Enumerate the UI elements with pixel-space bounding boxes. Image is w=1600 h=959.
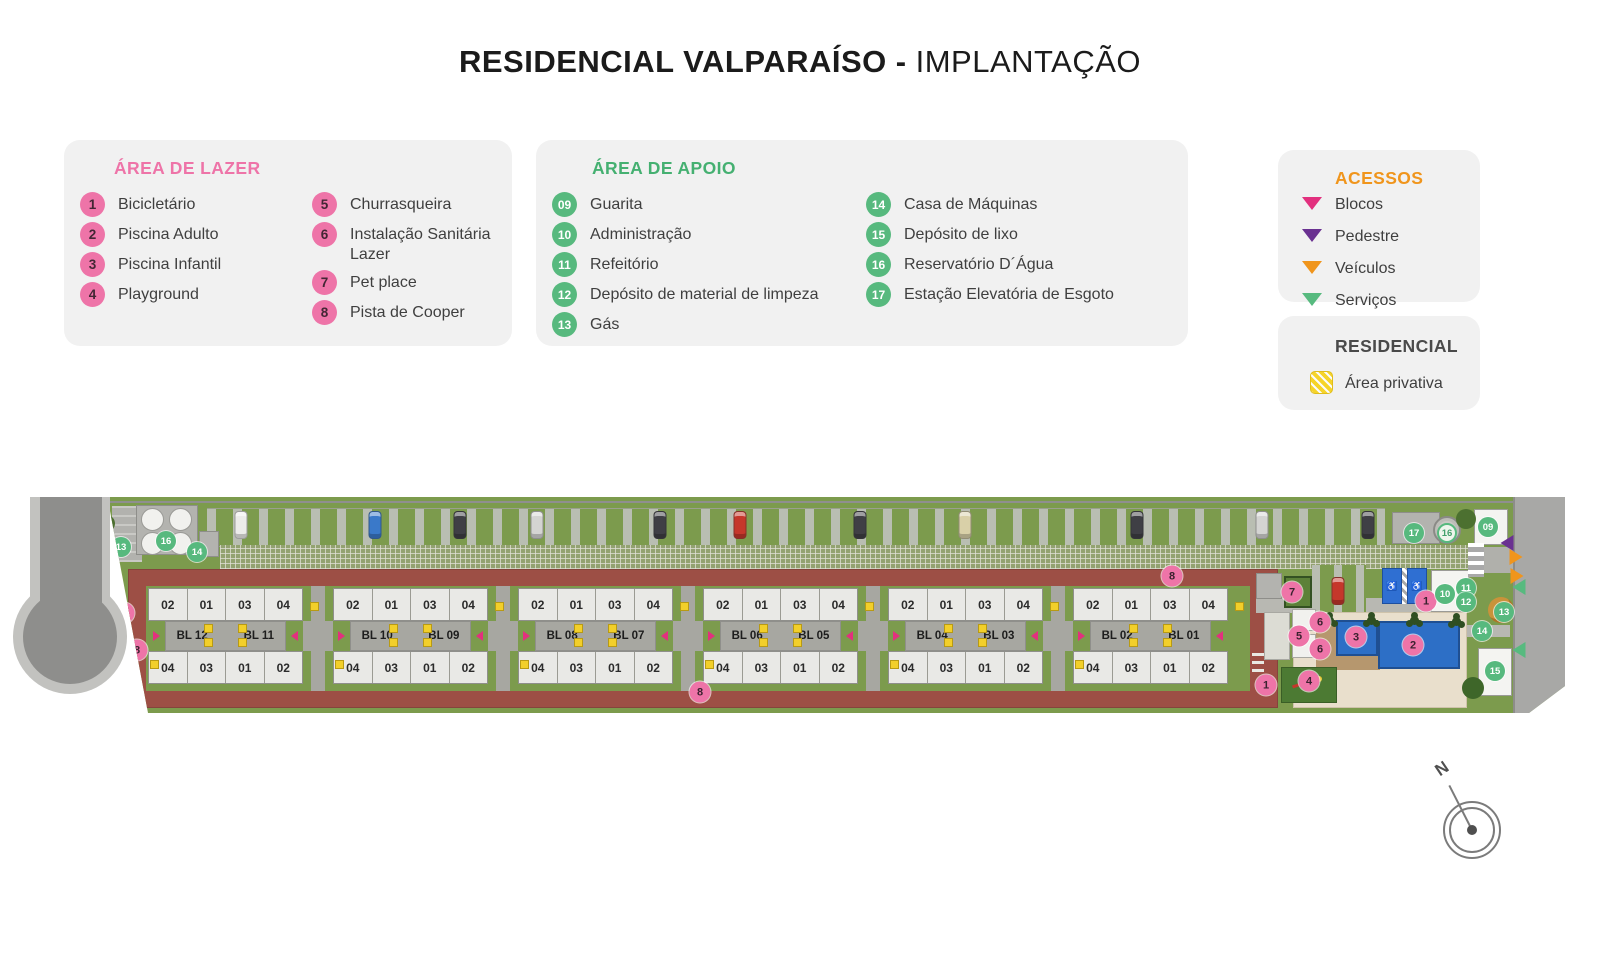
block-access-triangle-icon	[153, 631, 160, 641]
plan-marker-14: 14	[187, 542, 207, 562]
title-separator: -	[896, 44, 907, 79]
block-access-triangle-icon	[846, 631, 853, 641]
unit-cell: 02	[1074, 589, 1113, 620]
right-road	[1513, 497, 1565, 713]
block-label: BL 01	[1168, 630, 1199, 642]
unit-row-top: 02010304	[518, 588, 673, 621]
access-triangle-icon	[1302, 261, 1322, 274]
private-area-patch	[608, 624, 617, 633]
palm-tree	[1410, 616, 1419, 625]
block-label: BL 03	[983, 630, 1014, 642]
private-area-patch	[423, 638, 432, 647]
site-plan: ♿ ♿ 02010304BL 12BL 110403010202010304BL	[0, 497, 1600, 887]
private-area-patch	[944, 638, 953, 647]
private-area-patch	[759, 638, 768, 647]
left-culdesac-surface	[23, 590, 117, 684]
unit-cell: 04	[635, 589, 673, 620]
private-area-patch	[520, 660, 529, 669]
legend-item: 3Piscina Infantil	[80, 252, 305, 277]
block-corridor: BL 10BL 09	[333, 621, 488, 651]
access-triangle-icon	[1302, 197, 1322, 210]
block-access-triangle-icon	[1216, 631, 1223, 641]
plan-marker-5: 5	[1289, 626, 1310, 647]
unit-cell: 03	[188, 652, 227, 683]
title-main: RESIDENCIAL VALPARAÍSO	[459, 44, 887, 79]
legend-item: Veículos	[1302, 256, 1399, 279]
legend-label: Serviços	[1335, 288, 1396, 311]
unit-row-bottom: 04030102	[703, 651, 858, 684]
private-area-patch	[238, 624, 247, 633]
perimeter-fence	[110, 501, 1513, 503]
crosswalk	[1468, 543, 1484, 577]
legend-label: Gás	[590, 312, 619, 335]
parked-car	[654, 511, 667, 539]
path-between-blocks	[488, 621, 518, 651]
plan-marker-17: 17	[1404, 523, 1424, 543]
legend-residencial-title: RESIDENCIAL	[1335, 336, 1480, 357]
barbecue-building	[1264, 612, 1290, 660]
plan-marker-16: 16	[1437, 523, 1457, 543]
plan-marker-15: 15	[1485, 661, 1505, 681]
legend-number-badge: 14	[866, 192, 891, 217]
unit-cell: 04	[265, 589, 303, 620]
parked-car	[1332, 577, 1345, 605]
site-area: ♿ ♿ 02010304BL 12BL 110403010202010304BL	[0, 497, 1600, 713]
plan-marker-13: 13	[111, 537, 131, 557]
legend-item: 16Reservatório D´Água	[866, 252, 1176, 277]
plan-marker-3: 3	[1346, 627, 1367, 648]
unit-row-top: 02010304	[888, 588, 1043, 621]
corridor-paving: BL 12BL 11	[165, 621, 286, 651]
block-pair: 02010304BL 08BL 0704030102	[518, 588, 673, 684]
bike-rack	[1252, 653, 1264, 656]
private-area-patch	[793, 624, 802, 633]
accessible-parking-stall: ♿	[1382, 568, 1402, 604]
unit-cell: 04	[820, 589, 858, 620]
unit-cell: 01	[411, 652, 450, 683]
private-area-patch	[204, 638, 213, 647]
private-area-label: Área privativa	[1345, 371, 1443, 394]
legend-number-badge: 7	[312, 270, 337, 295]
legend-label: Administração	[590, 222, 691, 245]
plan-marker-2: 2	[1403, 635, 1424, 656]
parked-car	[1256, 511, 1269, 539]
unit-cell: 01	[596, 652, 635, 683]
unit-cell: 02	[265, 652, 303, 683]
parked-car	[1362, 511, 1375, 539]
legend-acessos: ACESSOS BlocosPedestreVeículosServiços	[1278, 150, 1480, 302]
parked-car	[235, 511, 248, 539]
unit-cell: 01	[188, 589, 227, 620]
plan-marker-14: 14	[1472, 621, 1492, 641]
path-between-blocks	[303, 621, 333, 651]
corridor-paving: BL 08BL 07	[535, 621, 656, 651]
unit-cell: 02	[149, 589, 188, 620]
legend-number-badge: 6	[312, 222, 337, 247]
private-area-patch	[238, 638, 247, 647]
legend-number-badge: 17	[866, 282, 891, 307]
parking-strip	[207, 508, 1385, 547]
legend-number-badge: 15	[866, 222, 891, 247]
private-area-patch	[495, 602, 504, 611]
unit-row-bottom: 04030102	[518, 651, 673, 684]
unit-cell: 03	[966, 589, 1005, 620]
legend-number-badge: 4	[80, 282, 105, 307]
unit-cell: 02	[820, 652, 858, 683]
parked-car	[1131, 511, 1144, 539]
private-area-patch	[150, 660, 159, 669]
legend-number-badge: 3	[80, 252, 105, 277]
unit-cell: 02	[635, 652, 673, 683]
legend-residencial: RESIDENCIAL Área privativa	[1278, 316, 1480, 410]
private-area-patch	[389, 624, 398, 633]
private-area-patch	[204, 624, 213, 633]
block-access-triangle-icon	[1078, 631, 1085, 641]
legend-label: Veículos	[1335, 256, 1395, 279]
unit-cell: 04	[450, 589, 488, 620]
unit-row-top: 02010304	[148, 588, 303, 621]
unit-cell: 03	[781, 589, 820, 620]
legend-item: 13Gás	[552, 312, 864, 337]
block-corridor: BL 06BL 05	[703, 621, 858, 651]
block-access-triangle-icon	[476, 631, 483, 641]
legend-apoio-col2: 14Casa de Máquinas15Depósito de lixo16Re…	[866, 192, 1176, 312]
unit-cell: 03	[596, 589, 635, 620]
private-area-patch	[574, 638, 583, 647]
legend-apoio-title: ÁREA DE APOIO	[592, 158, 1188, 179]
bike-rack	[1252, 669, 1264, 672]
plan-marker-8: 8	[690, 682, 711, 703]
path-between-blocks	[1043, 621, 1073, 651]
private-area-patch	[1235, 602, 1244, 611]
unit-cell: 01	[373, 589, 412, 620]
legend-label: Casa de Máquinas	[904, 192, 1037, 215]
unit-cell: 01	[781, 652, 820, 683]
unit-cell: 03	[1151, 589, 1190, 620]
unit-cell: 04	[1190, 589, 1228, 620]
unit-cell: 03	[226, 589, 265, 620]
plan-marker-6: 6	[1310, 612, 1331, 633]
unit-row-bottom: 04030102	[888, 651, 1043, 684]
private-area-patch	[1163, 638, 1172, 647]
pet-place-building	[1256, 573, 1282, 599]
block-corridor: BL 12BL 11	[148, 621, 303, 651]
unit-cell: 02	[519, 589, 558, 620]
legend-number-badge: 11	[552, 252, 577, 277]
plan-marker-1: 1	[1256, 675, 1277, 696]
block-label: BL 07	[613, 630, 644, 642]
unit-cell: 03	[928, 652, 967, 683]
private-area-patch	[978, 638, 987, 647]
private-area-patch	[1129, 638, 1138, 647]
block-access-triangle-icon	[893, 631, 900, 641]
unit-cell: 03	[743, 652, 782, 683]
legend-label: Bicicletário	[118, 192, 195, 215]
legend-item: 11Refeitório	[552, 252, 864, 277]
access-triangle-icon	[1302, 229, 1322, 242]
unit-cell: 03	[411, 589, 450, 620]
plan-marker-4: 4	[1299, 671, 1320, 692]
unit-row-top: 02010304	[1073, 588, 1228, 621]
block-pair: 02010304BL 04BL 0304030102	[888, 588, 1043, 684]
unit-cell: 01	[928, 589, 967, 620]
parked-car	[734, 511, 747, 539]
private-area-patch	[890, 660, 899, 669]
page-title: RESIDENCIAL VALPARAÍSO-IMPLANTAÇÃO	[0, 44, 1600, 80]
legend-item: 12Depósito de material de limpeza	[552, 282, 864, 307]
corridor-paving: BL 10BL 09	[350, 621, 471, 651]
unit-row-bottom: 04030102	[1073, 651, 1228, 684]
access-triangle-icon	[1510, 549, 1523, 565]
block-label: BL 11	[244, 630, 274, 642]
legend-item: 10Administração	[552, 222, 864, 247]
block-access-triangle-icon	[523, 631, 530, 641]
legend-label: Pedestre	[1335, 224, 1399, 247]
private-area-patch	[423, 624, 432, 633]
legend-item: 09Guarita	[552, 192, 864, 217]
legend-item: 14Casa de Máquinas	[866, 192, 1176, 217]
block-access-triangle-icon	[661, 631, 668, 641]
plan-marker-1: 1	[1416, 591, 1437, 612]
private-area-patch	[759, 624, 768, 633]
block-access-triangle-icon	[1031, 631, 1038, 641]
unit-cell: 02	[334, 589, 373, 620]
access-triangle-icon	[1513, 579, 1526, 595]
legend-label: Guarita	[590, 192, 642, 215]
block-label: BL 05	[798, 630, 829, 642]
legend-lazer-title: ÁREA DE LAZER	[114, 158, 512, 179]
unit-cell: 01	[1113, 589, 1152, 620]
unit-cell: 03	[373, 652, 412, 683]
legend-item: 8Pista de Cooper	[312, 300, 510, 325]
legend-item: 4Playground	[80, 282, 305, 307]
legend-label: Estação Elevatória de Esgoto	[904, 282, 1114, 305]
plan-marker-09: 09	[1478, 517, 1498, 537]
unit-row-bottom: 04030102	[333, 651, 488, 684]
unit-row-top: 02010304	[333, 588, 488, 621]
compass-north-label: N	[1431, 757, 1452, 780]
private-area-patch	[335, 660, 344, 669]
block-pair: 02010304BL 02BL 0104030102	[1073, 588, 1228, 684]
legend-number-badge: 2	[80, 222, 105, 247]
access-triangle-icon	[1513, 642, 1526, 658]
unit-cell: 04	[1005, 589, 1043, 620]
legend-label: Reservatório D´Água	[904, 252, 1053, 275]
unit-cell: 01	[226, 652, 265, 683]
palm-tree	[1452, 617, 1461, 626]
private-area-patch	[1129, 624, 1138, 633]
legend-label: Piscina Adulto	[118, 222, 219, 245]
unit-cell: 01	[966, 652, 1005, 683]
plan-marker-6: 6	[1310, 639, 1331, 660]
plan-marker-10: 10	[1435, 584, 1455, 604]
legend-number-badge: 09	[552, 192, 577, 217]
parked-car	[369, 511, 382, 539]
legend-item: Serviços	[1302, 288, 1399, 311]
legend-number-badge: 8	[312, 300, 337, 325]
block-pair: 02010304BL 06BL 0504030102	[703, 588, 858, 684]
block-corridor: BL 08BL 07	[518, 621, 673, 651]
plan-marker-13: 13	[1494, 602, 1514, 622]
legend-item: Pedestre	[1302, 224, 1399, 247]
unit-cell: 02	[704, 589, 743, 620]
block-pair: 02010304BL 12BL 1104030102	[148, 588, 303, 684]
legend-item: 17Estação Elevatória de Esgoto	[866, 282, 1176, 307]
unit-cell: 01	[558, 589, 597, 620]
unit-cell: 03	[558, 652, 597, 683]
corridor-paving: BL 02BL 01	[1090, 621, 1211, 651]
path-between-blocks	[858, 621, 888, 651]
path-between-blocks	[673, 621, 703, 651]
legend-number-badge: 12	[552, 282, 577, 307]
private-area-patch	[978, 624, 987, 633]
private-area-patch	[310, 602, 319, 611]
access-triangle-icon	[1302, 293, 1322, 306]
private-area-patch	[574, 624, 583, 633]
private-area-patch	[865, 602, 874, 611]
plan-marker-8: 8	[1162, 566, 1183, 587]
bush	[1462, 677, 1484, 699]
private-area-patch	[944, 624, 953, 633]
unit-cell: 02	[889, 589, 928, 620]
compass-center-dot	[1467, 825, 1477, 835]
legend-label: Pet place	[350, 270, 417, 293]
parked-car	[959, 511, 972, 539]
legend-apoio-col1: 09Guarita10Administração11Refeitório12De…	[552, 192, 864, 342]
legend-item: 7Pet place	[312, 270, 510, 295]
palm-tree	[1367, 616, 1376, 625]
legend-item: 1Bicicletário	[80, 192, 305, 217]
private-area-patch	[1163, 624, 1172, 633]
legend-number-badge: 13	[552, 312, 577, 337]
private-area-patch	[1075, 660, 1084, 669]
parked-car	[854, 511, 867, 539]
plan-marker-7: 7	[1282, 582, 1303, 603]
bike-rack	[1252, 661, 1264, 664]
unit-cell: 02	[450, 652, 488, 683]
block-label: BL 09	[428, 630, 459, 642]
compass: N	[1414, 757, 1544, 872]
legend-acessos-title: ACESSOS	[1335, 168, 1480, 189]
block-corridor: BL 04BL 03	[888, 621, 1043, 651]
legend-label: Instalação Sanitária Lazer	[350, 222, 510, 265]
legend-label: Churrasqueira	[350, 192, 451, 215]
legend-number-badge: 5	[312, 192, 337, 217]
legend-label: Blocos	[1335, 192, 1383, 215]
private-area-patch	[705, 660, 714, 669]
unit-row-top: 02010304	[703, 588, 858, 621]
parked-car	[454, 511, 467, 539]
legend-label: Depósito de material de limpeza	[590, 282, 819, 305]
legend-area-de-lazer: ÁREA DE LAZER 1Bicicletário2Piscina Adul…	[64, 140, 512, 346]
legend-number-badge: 10	[552, 222, 577, 247]
water-tank	[141, 508, 164, 531]
corridor-paving: BL 04BL 03	[905, 621, 1026, 651]
block-pair: 02010304BL 10BL 0904030102	[333, 588, 488, 684]
legend-item: 6Instalação Sanitária Lazer	[312, 222, 510, 265]
private-area-row: Área privativa	[1310, 371, 1480, 394]
legend-item: 15Depósito de lixo	[866, 222, 1176, 247]
corridor-paving: BL 06BL 05	[720, 621, 841, 651]
legend-item: 2Piscina Adulto	[80, 222, 305, 247]
legend-item: Blocos	[1302, 192, 1399, 215]
unit-row-bottom: 04030102	[148, 651, 303, 684]
plan-marker-8: 8	[127, 640, 148, 661]
unit-cell: 02	[1005, 652, 1043, 683]
unit-cell: 01	[1151, 652, 1190, 683]
block-access-triangle-icon	[708, 631, 715, 641]
water-tank	[169, 508, 192, 531]
legend-item: 5Churrasqueira	[312, 192, 510, 217]
legend-label: Depósito de lixo	[904, 222, 1018, 245]
legend-area-de-apoio: ÁREA DE APOIO 09Guarita10Administração11…	[536, 140, 1188, 346]
private-area-patch	[608, 638, 617, 647]
parked-car	[531, 511, 544, 539]
block-access-triangle-icon	[338, 631, 345, 641]
plan-marker-16: 16	[156, 531, 176, 551]
paver-driveway	[220, 545, 1468, 569]
title-sub: IMPLANTAÇÃO	[916, 44, 1141, 79]
private-area-patch	[389, 638, 398, 647]
legend-label: Pista de Cooper	[350, 300, 465, 323]
unit-cell: 02	[1190, 652, 1228, 683]
block-access-triangle-icon	[291, 631, 298, 641]
unit-cell: 03	[1113, 652, 1152, 683]
legend-label: Playground	[118, 282, 199, 305]
unit-cell: 01	[743, 589, 782, 620]
block-corridor: BL 02BL 01	[1073, 621, 1228, 651]
plan-marker-12: 12	[1456, 592, 1476, 612]
tree	[1456, 509, 1476, 529]
legend-lazer-col1: 1Bicicletário2Piscina Adulto3Piscina Inf…	[80, 192, 305, 312]
legend-label: Refeitório	[590, 252, 658, 275]
private-area-patch	[1050, 602, 1059, 611]
private-area-patch	[793, 638, 802, 647]
legend-number-badge: 16	[866, 252, 891, 277]
legend-number-badge: 1	[80, 192, 105, 217]
legend-lazer-col2: 5Churrasqueira6Instalação Sanitária Laze…	[312, 192, 510, 330]
private-area-swatch-icon	[1310, 371, 1333, 394]
legend-acessos-list: BlocosPedestreVeículosServiços	[1302, 192, 1399, 320]
private-area-patch	[680, 602, 689, 611]
legend-label: Piscina Infantil	[118, 252, 221, 275]
